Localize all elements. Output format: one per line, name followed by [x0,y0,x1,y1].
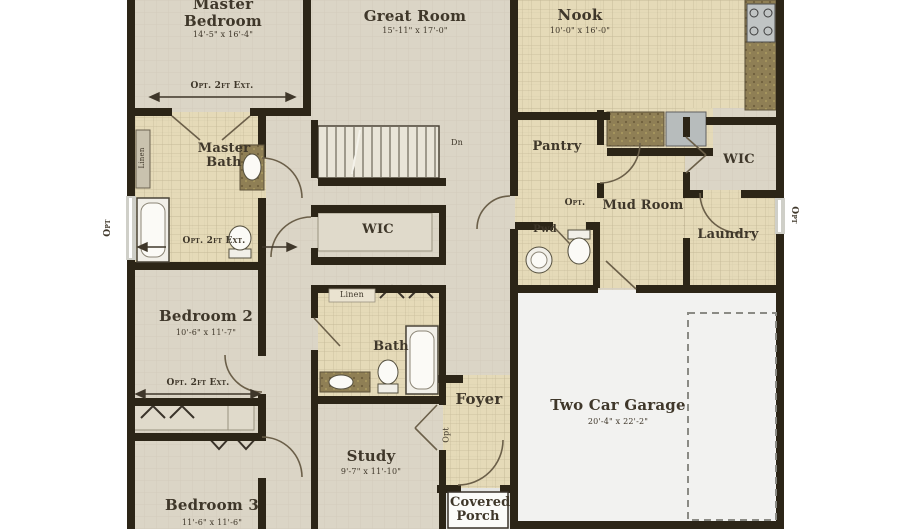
room-label-linen-master: Linen [139,147,147,168]
room-label-study: Study [347,448,396,465]
floor-plan-drawing [0,0,900,529]
room-dims-master-bedroom: 14'-5" x 16'-4" [193,31,253,40]
room-label-powder: Pwd [533,224,557,235]
vanity-sink-bath2 [320,372,370,392]
tub-icon-bath2 [406,326,438,394]
toilet-icon-powder [568,230,590,264]
room-label-great-room: Great Room [364,8,466,25]
toilet-icon-bath2 [378,360,398,393]
annotation-opt-ext-bedroom2: Opt. 2ft Ext. [167,379,230,389]
room-dims-bedroom2: 10'-6" x 11'-7" [176,329,236,338]
room-dims-study: 9'-7" x 11'-10" [341,468,401,477]
annotation-opt-ext-bath: Opt. 2ft Ext. [183,237,246,247]
annotation-stairs-down: Dn [451,139,463,148]
room-label-master-bath: Master Bath [192,142,256,171]
annotation-opt-left-window: Opt [104,219,114,236]
room-label-bedroom3: Bedroom 3 [165,497,259,514]
room-label-pantry: Pantry [533,140,582,154]
room-label-master-bedroom: Master Bedroom [168,0,278,29]
room-dims-nook: 10'-0" x 16'-0" [550,27,610,36]
room-label-mud-room: Mud Room [603,199,684,213]
room-dims-great-room: 15'-11" x 17'-0" [382,27,448,36]
room-label-covered-porch: Covered Porch [450,496,506,525]
room-label-laundry: Laundry [697,228,758,242]
floor-plan: Master Bedroom 14'-5" x 16'-4" Great Roo… [0,0,900,529]
annotation-opt-ext-master: Opt. 2ft Ext. [191,82,254,92]
annotation-opt-foyer: Opt [443,427,452,443]
sink-icon-powder [526,247,552,273]
room-label-nook: Nook [558,7,603,24]
annotation-opt-pantry: Opt. [565,199,586,209]
stairs [318,126,439,178]
stove-icon [747,4,775,42]
room-label-foyer: Foyer [456,391,503,408]
room-dims-garage: 20'-4" x 22'-2" [588,418,648,427]
room-label-linen-bath: Linen [340,291,364,300]
room-label-garage: Two Car Garage [550,397,685,414]
room-dims-bedroom3: 11'-6" x 11'-6" [182,519,242,528]
room-label-wic-hall: WIC [362,223,394,237]
tub-icon-master [137,198,169,262]
room-label-bath2: Bath [373,340,409,354]
annotation-opt-right-window: Opt [788,206,798,223]
room-label-bedroom2: Bedroom 2 [159,308,253,325]
room-label-wic-rear: WIC [723,153,755,167]
